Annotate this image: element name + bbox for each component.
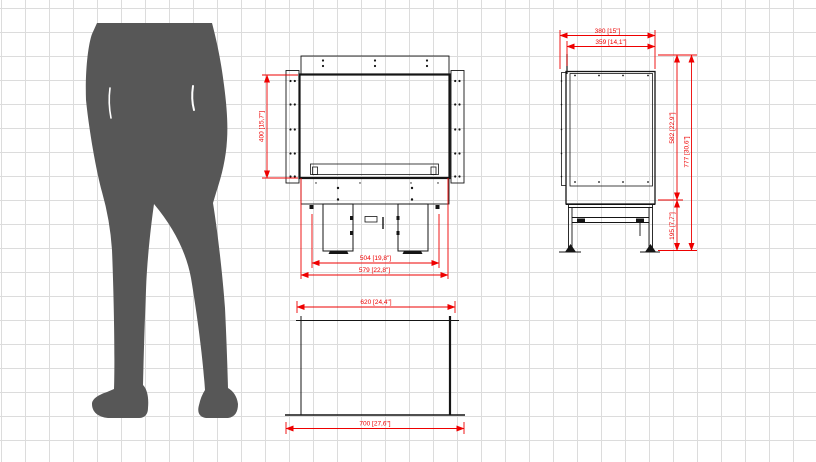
dim-front-inner-width: 504 [19,8"] bbox=[360, 255, 391, 262]
side-panel-screws bbox=[561, 75, 649, 183]
dim-side-body-height: 582 [22,9"] bbox=[669, 112, 676, 143]
front-base-plenum bbox=[301, 178, 449, 204]
dim-front-height: 400 [15,7"] bbox=[259, 111, 266, 142]
human-silhouette bbox=[86, 23, 238, 418]
front-firebox-opening bbox=[300, 75, 450, 179]
side-stand bbox=[559, 205, 660, 253]
side-panel bbox=[570, 74, 653, 187]
plan-view bbox=[285, 316, 465, 415]
front-top-flange-holes bbox=[322, 59, 428, 67]
side-front-flange bbox=[562, 73, 567, 186]
front-right-flange bbox=[451, 71, 464, 184]
front-burner-tray bbox=[311, 164, 439, 175]
plan-view-dimensions: 620 [24,4"] 700 [27,6"] bbox=[286, 299, 464, 434]
dim-plan-top-width: 620 [24,4"] bbox=[360, 299, 391, 306]
drawing-canvas: 400 [15,7"] 504 [19,8"] 579 [22,8"] bbox=[0, 0, 816, 462]
front-left-flange bbox=[286, 71, 299, 184]
front-left-foot bbox=[329, 251, 349, 254]
front-fittings bbox=[310, 205, 440, 235]
front-right-leg bbox=[398, 204, 428, 251]
side-left-foot bbox=[565, 244, 576, 252]
side-right-foot bbox=[645, 244, 656, 252]
side-body bbox=[566, 72, 655, 205]
dim-side-depth: 380 [15"] bbox=[595, 28, 621, 35]
front-view bbox=[286, 56, 464, 254]
front-left-leg bbox=[323, 204, 353, 251]
technical-drawing-sheet: 400 [15,7"] 504 [19,8"] 579 [22,8"] bbox=[0, 0, 816, 462]
dim-side-inner-depth: 359 [14,1"] bbox=[595, 39, 626, 46]
front-flange-holes bbox=[289, 80, 460, 178]
front-gas-connection bbox=[365, 217, 383, 230]
dim-front-overall-width: 579 [22,8"] bbox=[359, 267, 390, 274]
dim-side-total-height: 777 [30,6"] bbox=[684, 136, 691, 167]
front-right-foot bbox=[403, 251, 423, 254]
front-plenum-holes bbox=[315, 182, 438, 200]
dim-plan-base-width: 700 [27,6"] bbox=[359, 421, 390, 428]
dim-side-base-height: 195 [7,7"] bbox=[669, 212, 676, 240]
side-view bbox=[559, 54, 660, 252]
